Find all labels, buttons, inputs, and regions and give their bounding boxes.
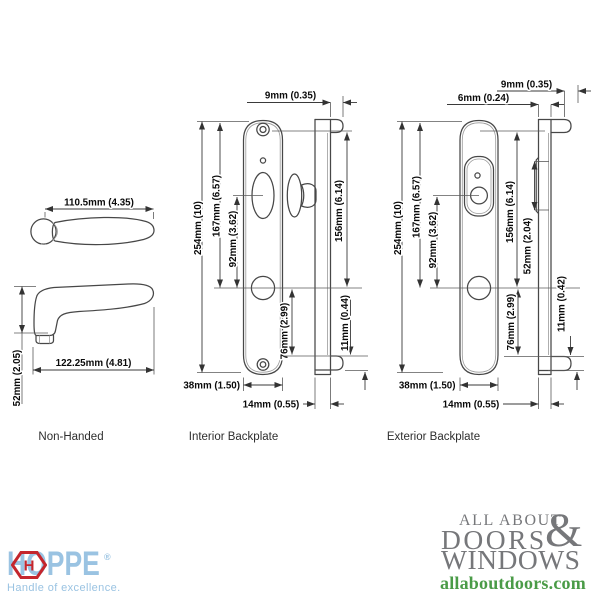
hoppe-hexagon-icon: H bbox=[11, 551, 47, 579]
lever-top-view-outline bbox=[52, 217, 154, 244]
dim-exterior-cylinder-to-handle: 92mm (3.62) bbox=[428, 212, 439, 269]
section-labels: Non-Handed Interior Backplate Exterior B… bbox=[38, 431, 480, 443]
dim-interior-cap-offset: 9mm (0.35) bbox=[265, 91, 316, 102]
dim-interior-side-top-to-handle: 156mm (6.14) bbox=[334, 180, 345, 242]
interior-plate-outline bbox=[244, 121, 283, 375]
exterior-housing-hole bbox=[475, 173, 480, 178]
dim-lever-length: 122.25mm (4.81) bbox=[56, 358, 132, 369]
aadw-logo: ALL ABOUT & DOORS WINDOWS allaboutdoors.… bbox=[439, 506, 594, 596]
lever-spindle-foot bbox=[36, 336, 54, 344]
dim-exterior-plate-thickness: 6mm (0.24) bbox=[458, 93, 509, 104]
hardware-dimension-drawing: 110.5mm (4.35) 122.25mm (4.81) 52mm (2.0… bbox=[0, 0, 600, 600]
aadw-url: allaboutdoors.com bbox=[440, 574, 586, 592]
dim-exterior-cap-offset: 9mm (0.35) bbox=[501, 80, 552, 91]
interior-side-thumbturn bbox=[287, 174, 301, 217]
exterior-backplate-drawing: 9mm (0.35) 6mm (0.24) 254mm (10) 167mm (… bbox=[393, 80, 591, 411]
dim-interior-top-to-handle: 167mm (6.57) bbox=[212, 175, 223, 237]
interior-label: Interior Backplate bbox=[189, 431, 279, 443]
interior-bottom-screw bbox=[257, 359, 269, 371]
dim-exterior-plate-width: 38mm (1.50) bbox=[399, 381, 456, 392]
dim-exterior-handle-to-bottom: 76mm (2.99) bbox=[506, 294, 517, 351]
exterior-side-top-cap bbox=[539, 120, 572, 133]
dim-interior-side-width: 14mm (0.55) bbox=[243, 400, 300, 411]
registered-trademark-symbol: ® bbox=[104, 552, 111, 562]
svg-text:H: H bbox=[24, 558, 35, 575]
dim-exterior-side-top-to-handle: 156mm (6.14) bbox=[505, 181, 516, 243]
interior-backplate-drawing: 9mm (0.35) 254mm (10) 167mm (6.57) 92mm … bbox=[183, 91, 368, 411]
dim-exterior-cylinder-housing: 52mm (2.04) bbox=[523, 218, 534, 275]
dim-lever-height: 52mm (2.05) bbox=[12, 350, 23, 407]
interior-small-hole bbox=[260, 158, 265, 163]
dim-exterior-end-cap: 11mm (0.42) bbox=[557, 276, 568, 332]
dim-interior-end-cap: 11mm (0.44) bbox=[340, 295, 351, 351]
interior-side-bottom-cap bbox=[315, 356, 343, 370]
dim-exterior-top-to-handle: 167mm (6.57) bbox=[412, 176, 423, 238]
exterior-side-bottom-cap bbox=[539, 357, 572, 371]
aadw-line3: WINDOWS bbox=[441, 546, 580, 574]
dim-interior-plate-width: 38mm (1.50) bbox=[183, 381, 240, 392]
dim-interior-handle-to-bottom: 76mm (2.99) bbox=[280, 303, 291, 360]
exterior-label: Exterior Backplate bbox=[387, 431, 480, 443]
hoppe-tagline: Handle of excellence. bbox=[7, 582, 121, 594]
interior-side-knob bbox=[302, 184, 317, 208]
dim-interior-total-height: 254mm (10) bbox=[193, 201, 204, 255]
interior-top-screw bbox=[257, 123, 269, 135]
dim-lever-top-width: 110.5mm (4.35) bbox=[64, 198, 134, 209]
dim-interior-turn-to-handle: 92mm (3.62) bbox=[228, 211, 239, 268]
dim-exterior-side-width: 14mm (0.55) bbox=[443, 400, 500, 411]
exterior-cylinder-housing bbox=[465, 157, 494, 217]
lever-drawing: 110.5mm (4.35) 122.25mm (4.81) 52mm (2.0… bbox=[12, 198, 154, 407]
hoppe-logo: HOPPE ® H Handle of excellence. bbox=[7, 551, 121, 594]
lever-label: Non-Handed bbox=[38, 431, 103, 443]
lever-side-view-outline bbox=[34, 284, 153, 336]
interior-side-top-cap bbox=[315, 120, 343, 133]
dim-exterior-total-height: 254mm (10) bbox=[393, 201, 404, 255]
